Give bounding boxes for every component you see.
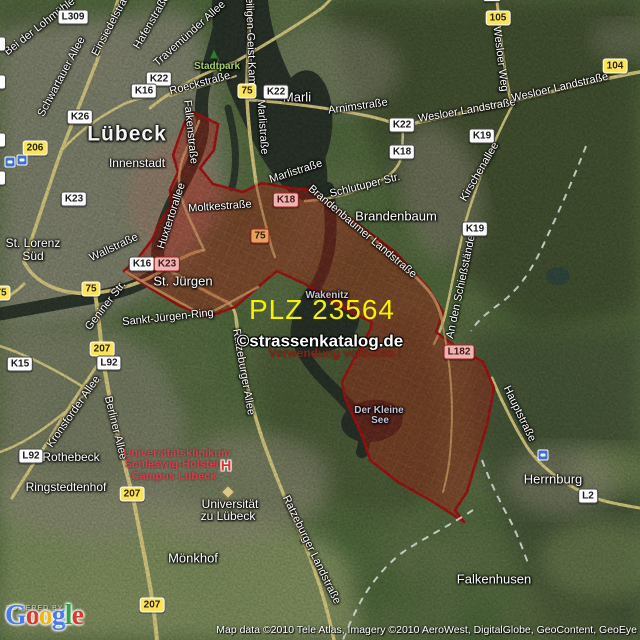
train-station-icon: [538, 450, 549, 461]
google-logo[interactable]: Google: [5, 600, 83, 632]
hospital-h-icon: H: [221, 458, 232, 475]
google-logo-letter: G: [5, 600, 26, 631]
map-attribution[interactable]: Map data ©2010 Tele Atlas, Imagery ©2010…: [216, 624, 637, 636]
tree-icon: [210, 50, 218, 59]
google-logo-letter: o: [26, 600, 39, 631]
google-logo-letter: e: [72, 600, 83, 631]
satellite-artwork: [0, 0, 640, 640]
google-logo-letter: g: [52, 600, 65, 631]
map-canvas[interactable]: Bei der Lohmühle Schwartauer Allee Einsi…: [0, 0, 640, 640]
train-station-icon: [17, 155, 28, 166]
google-logo-letter: l: [65, 600, 72, 631]
train-station-icon: [5, 157, 16, 168]
google-logo-letter: o: [39, 600, 52, 631]
